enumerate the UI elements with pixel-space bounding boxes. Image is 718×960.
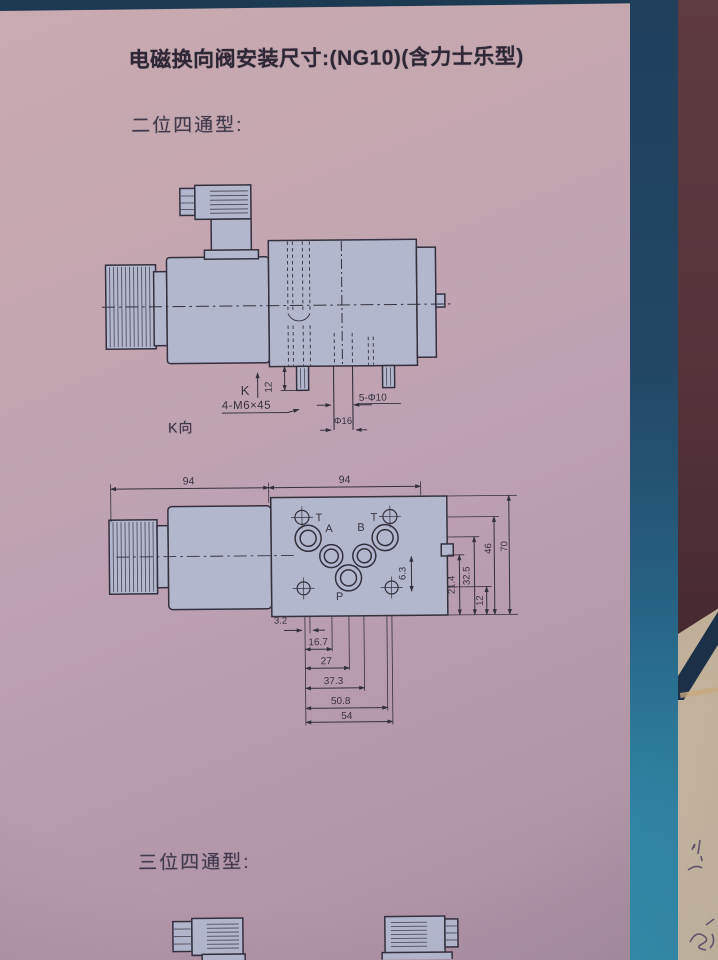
top-edge-background bbox=[0, 0, 660, 14]
connector-neck-right bbox=[382, 952, 452, 960]
dim-16-7: 16.7 bbox=[308, 637, 328, 648]
end-nub bbox=[436, 294, 445, 307]
port-label-p: P bbox=[336, 591, 343, 603]
handwriting-scribbles bbox=[678, 700, 718, 960]
mounting-stud-left bbox=[296, 366, 308, 390]
right-edge-background bbox=[678, 0, 718, 960]
right-teal-strip bbox=[630, 0, 678, 960]
section-label-three-position: 三位四通型: bbox=[138, 847, 251, 875]
dim-label-hole16: Φ16 bbox=[334, 416, 352, 427]
dim-12: 12 bbox=[475, 595, 486, 606]
solenoid-coil bbox=[166, 257, 269, 364]
side-view-drawing: K 12 4-M6×45 5-Φ10 Φ16 bbox=[93, 164, 466, 448]
dim-label-pins: 5-Φ10 bbox=[359, 393, 388, 404]
edge-notch bbox=[441, 544, 453, 556]
photographed-catalog-page: 电磁换向阀安装尺寸:(NG10)(含力士乐型) 二位四通型: bbox=[0, 0, 718, 960]
dim-21-4: 21.4 bbox=[446, 576, 457, 595]
k-view-label: K向 bbox=[168, 417, 194, 437]
mounting-face bbox=[271, 496, 448, 617]
dim-37-3: 37.3 bbox=[324, 676, 344, 687]
connector-neck bbox=[211, 219, 251, 252]
dim-6-3: 6.3 bbox=[397, 567, 408, 580]
catalog-page: 电磁换向阀安装尺寸:(NG10)(含力士乐型) 二位四通型: bbox=[0, 0, 718, 960]
page-title: 电磁换向阀安装尺寸:(NG10)(含力士乐型) bbox=[128, 39, 608, 74]
connector-flange bbox=[204, 250, 258, 260]
cable-gland bbox=[180, 188, 195, 215]
dim-50-8: 50.8 bbox=[331, 696, 351, 707]
connector-plug bbox=[195, 185, 251, 220]
book-cover-brown bbox=[678, 0, 718, 634]
port-label-b: B bbox=[357, 522, 364, 534]
dim-94-right: 94 bbox=[339, 474, 351, 486]
connector-neck-left bbox=[202, 954, 245, 960]
port-label-t-left: T bbox=[316, 512, 323, 524]
mounting-stud-right bbox=[382, 365, 394, 387]
knob-adapter bbox=[154, 272, 168, 346]
three-position-drawing-partial bbox=[155, 911, 475, 960]
valve-body bbox=[268, 239, 417, 366]
dim-46: 46 bbox=[483, 543, 494, 554]
dim-70: 70 bbox=[499, 541, 510, 552]
top-view-drawing: T T A B P bbox=[95, 458, 528, 734]
valve-solid-shapes-top bbox=[109, 496, 454, 618]
dim-27: 27 bbox=[321, 656, 333, 667]
solenoid-coil-top bbox=[168, 506, 272, 610]
port-label-a: A bbox=[325, 523, 333, 535]
dim-label-k: K bbox=[241, 383, 250, 398]
valve-solid-shapes bbox=[105, 183, 446, 392]
dim-label-bolts: 4-M6×45 bbox=[222, 400, 271, 412]
dim-3-2: 3.2 bbox=[274, 616, 287, 627]
end-cap bbox=[416, 247, 436, 357]
port-label-t-right: T bbox=[371, 512, 378, 524]
dim-94-left: 94 bbox=[183, 475, 195, 487]
dim-label-12: 12 bbox=[264, 381, 275, 393]
section-label-two-position: 二位四通型: bbox=[131, 110, 244, 138]
dim-54: 54 bbox=[341, 711, 353, 722]
dim-32-5: 32.5 bbox=[461, 566, 472, 585]
